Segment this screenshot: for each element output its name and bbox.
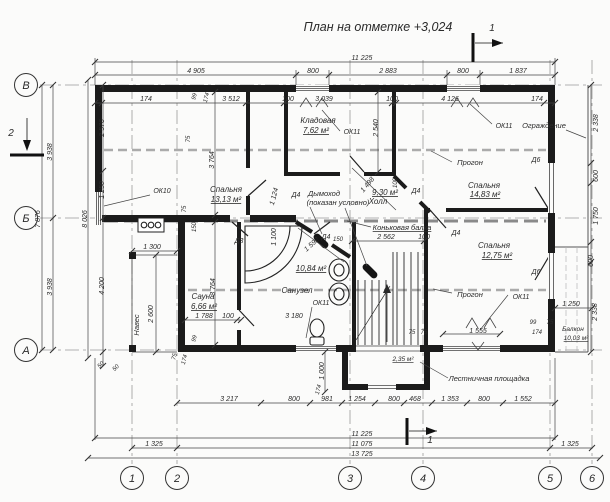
dimension-label: 1 552 — [514, 396, 532, 403]
dimension-label: 3 938 — [47, 143, 54, 161]
floor-plan-drawing: 123456ВБА — [0, 0, 610, 502]
window-mark: ОК11 — [313, 300, 330, 307]
drawing-title: План на отметке +3,024 — [304, 20, 453, 34]
dimension-label: 11 225 — [352, 55, 373, 62]
room-name-hall: Холл — [368, 197, 388, 206]
room-name-balcony: Балкон — [562, 326, 584, 333]
room-area-hall: 9,30 м² — [372, 188, 398, 197]
dimension-label: 174 — [203, 91, 212, 103]
dimension-label: 11 225 — [352, 431, 373, 438]
room-name-storage: Кладовая — [300, 116, 336, 125]
door-mark: Д3 — [234, 238, 244, 245]
door-mark: Д4 — [411, 188, 421, 195]
door-mark: Д4 — [321, 234, 331, 241]
axis-label-6: 6 — [589, 473, 596, 485]
dimension-label: 1 788 — [195, 313, 213, 320]
dimension-label: 50 — [97, 360, 106, 369]
dimension-label: 150 — [333, 237, 344, 243]
dimension-label: 600 — [588, 255, 595, 267]
dimension-label: 800 — [388, 396, 400, 403]
dimension-label: 8 026 — [82, 210, 89, 228]
section-arrow — [23, 140, 31, 151]
dimension-label: 800 — [478, 396, 490, 403]
interior-walls — [185, 92, 548, 345]
window-mark: ОК11 — [496, 123, 513, 130]
room-area-bedroom-3: 12,75 м² — [482, 251, 513, 260]
floor-plan-sheet: 123456ВБА — [0, 0, 610, 502]
dimension-label: 468 — [409, 396, 421, 403]
dimension-label: 75 — [547, 320, 554, 326]
dimension-label: 7 876 — [35, 210, 42, 228]
dimension-label: 174 — [140, 96, 152, 103]
room-area-landing: 2,35 м² — [391, 356, 414, 363]
axis-label-3: 3 — [347, 473, 354, 485]
dimension-label: 2 600 — [148, 305, 155, 324]
dimension-label: 100 — [393, 177, 399, 188]
annotation-ridge-beam: Коньковая балка — [373, 223, 432, 232]
annotation-railing: Ограждение — [522, 121, 566, 130]
dimension-label: 174 — [532, 330, 543, 336]
dimension-label: 75 — [171, 352, 179, 361]
dimension-label: 1 254 — [348, 396, 366, 403]
axis-label-А: А — [21, 345, 29, 357]
dimension-label: 1 353 — [441, 396, 459, 403]
window-ok11-top-2 — [447, 85, 480, 92]
door-mark: Д4 — [291, 192, 301, 199]
dimension-label: 4 126 — [441, 96, 459, 103]
dimension-label: 150 — [192, 221, 198, 232]
dimension-label: 1 750 — [593, 207, 600, 225]
annotation-purlin: Прогон — [457, 290, 483, 299]
dimension-label: 75 — [186, 135, 192, 142]
room-name-sauna: Сауна — [192, 292, 215, 301]
dimension-label: 1 555 — [469, 328, 487, 335]
dimension-label: 174 — [181, 353, 190, 365]
dimension-label: 4 200 — [99, 277, 106, 295]
dimension-label: 75 — [409, 330, 416, 336]
window-mark: ОК11 — [344, 129, 361, 136]
dimension-label: 174 — [531, 96, 543, 103]
section-mark-1-top — [473, 33, 503, 62]
door-mark: Д4 — [451, 230, 461, 237]
chimney — [361, 262, 379, 280]
dimension-label: 13 725 — [351, 451, 373, 458]
axis-label-4: 4 — [420, 473, 426, 485]
window-mark: ОК10 — [153, 188, 170, 195]
dimension-label: 2 883 — [378, 68, 397, 75]
leader-lines — [104, 104, 586, 378]
annotation-chimney: Дымоход — [307, 189, 340, 198]
washbasin — [329, 283, 349, 305]
axis-label-В: В — [22, 80, 29, 92]
room-area-sauna: 6,66 м² — [191, 302, 217, 311]
axis-label-2: 2 — [173, 473, 180, 485]
corner-bathtub-inner — [245, 226, 290, 271]
room-name-bedroom-1: Спальня — [210, 185, 243, 194]
window-ok11-bottom-1 — [296, 345, 336, 352]
toilet — [310, 319, 324, 345]
room-area-bedroom-1: 13,13 м² — [211, 195, 242, 204]
dimension-label: 1 837 — [509, 68, 528, 75]
dimension-label: 50 — [112, 363, 121, 372]
dimension-label: 800 — [457, 68, 469, 75]
section-mark-2-left — [10, 118, 44, 155]
dimension-label: 3 764 — [209, 151, 216, 169]
dimension-label: 1 592 — [303, 236, 321, 253]
room-name-bathroom: Санузел — [281, 286, 313, 295]
window-ok11-bottom-2 — [443, 345, 500, 352]
axis-label-Б: Б — [22, 213, 29, 225]
dimension-label: 3 512 — [222, 96, 240, 103]
section-arrow — [426, 427, 437, 435]
dimension-label: 3 039 — [315, 96, 333, 103]
section-label: 1 — [489, 23, 495, 34]
dimension-label: 1 300 — [143, 244, 161, 251]
dimension-label: 800 — [307, 68, 319, 75]
window-ok11-top-1 — [296, 85, 329, 92]
dimension-label: 100 — [282, 96, 294, 103]
door-mark: Д6 — [531, 157, 541, 164]
room-area-bedroom-2: 14,83 м² — [470, 190, 501, 199]
window-mark: ОК11 — [513, 294, 530, 301]
dimension-label: 1 325 — [145, 441, 163, 448]
room-name-bedroom-3: Спальня — [478, 241, 511, 250]
dimension-label: 4 905 — [187, 68, 205, 75]
dimension-label: 99 — [191, 334, 199, 343]
dimension-label: 99 — [191, 92, 199, 101]
washbasin — [329, 259, 349, 281]
dimension-label: 2 338 — [592, 303, 599, 322]
dimension-label: 100 — [386, 96, 398, 103]
stair-up-arrow — [383, 284, 391, 293]
dimension-label: 11 075 — [352, 441, 373, 448]
section-label: 1 — [427, 435, 433, 446]
dimension-label: 3 938 — [47, 278, 54, 296]
dimension-label: 100 — [222, 313, 234, 320]
section-arrow — [492, 39, 503, 47]
dimension-label: 1 000 — [319, 362, 326, 380]
dimension-label: 2 540 — [373, 119, 380, 138]
dimension-label: 3 180 — [285, 313, 303, 320]
dimension-label: 2 576 — [99, 119, 106, 138]
dimension-label: 800 — [288, 396, 300, 403]
dimension-label: 600 — [593, 170, 600, 182]
dimension-label: 2 338 — [593, 114, 600, 133]
dimension-label: 3 217 — [220, 396, 239, 403]
room-area-balcony: 10,03 м² — [564, 335, 590, 342]
door-d6-right-2 — [548, 253, 555, 299]
dimension-label: 100 — [418, 234, 430, 241]
room-name-bedroom-2: Спальня — [468, 181, 501, 190]
dimension-label: 75 — [182, 205, 188, 212]
canopy-post — [129, 345, 136, 352]
section-label: 2 — [7, 128, 14, 139]
dimension-label: 174 — [315, 383, 324, 395]
axis-label-5: 5 — [547, 473, 554, 485]
door-mark: Д6 — [531, 269, 541, 276]
room-area-storage: 7,62 м² — [303, 126, 329, 135]
annotation-chimney-note: (показан условно) — [307, 198, 370, 207]
annotation-canopy: Навес — [132, 314, 141, 335]
dimension-label: 1 250 — [99, 181, 106, 199]
dimension-label: 1 325 — [561, 441, 579, 448]
dimension-label: 981 — [321, 396, 333, 403]
door-d6-right-1 — [548, 163, 555, 213]
dimension-label: 1 124 — [269, 187, 280, 206]
dimension-label: 2 562 — [376, 234, 395, 241]
dimension-label: 1 250 — [562, 301, 580, 308]
dimension-label: 1 100 — [271, 228, 278, 246]
annotation-purlin: Прогон — [457, 158, 483, 167]
room-area-bathroom: 10,84 м² — [296, 264, 327, 273]
annotation-stair-landing: Лестничная площадка — [448, 374, 530, 383]
axis-label-1: 1 — [129, 473, 135, 485]
dimension-label: 75 — [421, 330, 428, 336]
vent-block — [138, 218, 164, 232]
dimension-label: 99 — [530, 320, 537, 326]
canopy — [129, 252, 177, 352]
